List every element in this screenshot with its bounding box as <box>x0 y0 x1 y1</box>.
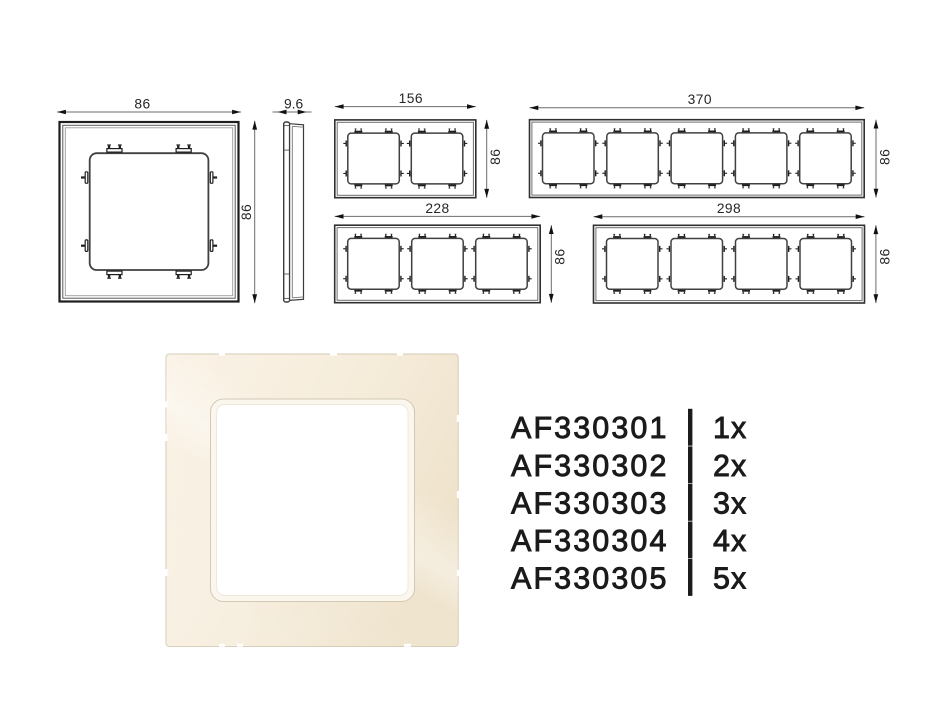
svg-text:86: 86 <box>877 149 892 165</box>
svg-text:86: 86 <box>488 149 503 165</box>
svg-text:228: 228 <box>425 201 449 216</box>
svg-text:86: 86 <box>553 248 568 264</box>
svg-text:AF330302: AF330302 <box>511 449 669 483</box>
svg-text:AF330301: AF330301 <box>511 411 669 445</box>
svg-text:4x: 4x <box>713 524 747 558</box>
svg-text:86: 86 <box>134 96 150 111</box>
svg-text:5x: 5x <box>713 561 747 595</box>
svg-text:1x: 1x <box>713 411 747 445</box>
svg-text:156: 156 <box>399 91 423 106</box>
svg-text:2x: 2x <box>713 449 747 483</box>
svg-text:298: 298 <box>717 201 741 216</box>
svg-text:AF330304: AF330304 <box>511 524 669 558</box>
svg-text:86: 86 <box>239 204 254 220</box>
svg-text:86: 86 <box>877 248 892 264</box>
svg-text:370: 370 <box>688 92 712 107</box>
svg-text:3x: 3x <box>713 486 747 520</box>
svg-text:9.6: 9.6 <box>284 96 304 111</box>
svg-text:AF330303: AF330303 <box>511 486 669 520</box>
svg-text:AF330305: AF330305 <box>511 561 669 595</box>
